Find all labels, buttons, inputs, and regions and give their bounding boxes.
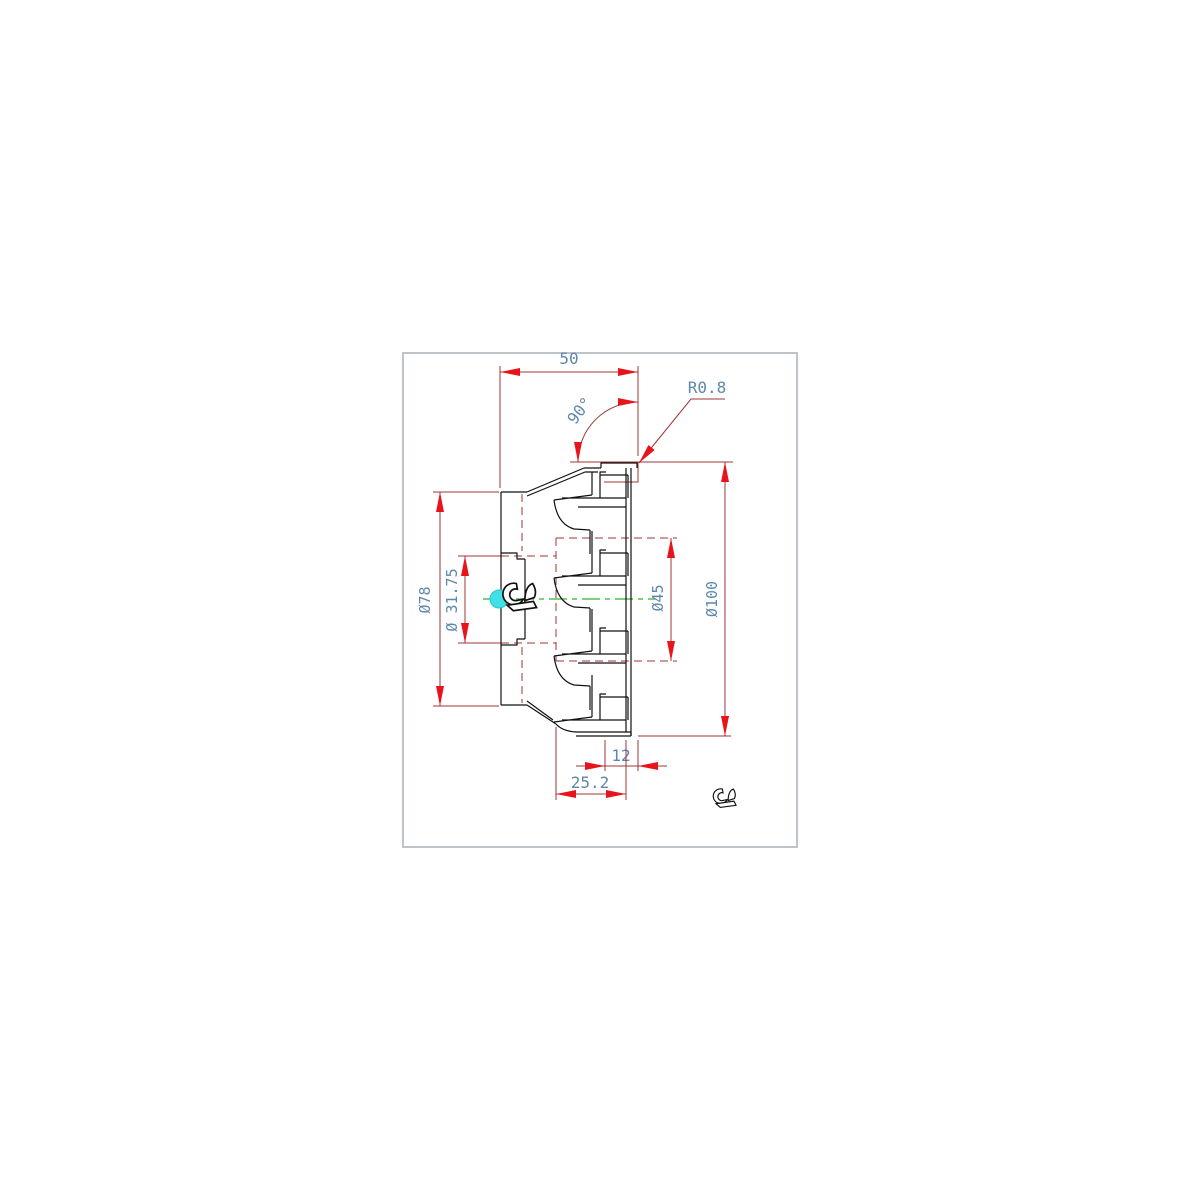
dim-label-counterbore-diameter: Ø45 (649, 584, 667, 611)
dim-label-back-diameter: Ø78 (416, 586, 434, 613)
dim-label-front-width: 25.2 (571, 773, 610, 792)
cad-drawing-canvas: 50 90° R0.8 Ø78 Ø 31.75 Ø45 (0, 0, 1200, 1200)
dim-label-cutting-diameter: Ø100 (703, 581, 721, 617)
dim-label-top-width: 50 (559, 349, 578, 368)
dim-label-bore-diameter: Ø 31.75 (443, 568, 461, 631)
dim-label-insert-offset: 12 (611, 746, 630, 765)
cad-drawing-svg: 50 90° R0.8 Ø78 Ø 31.75 Ø45 (0, 0, 1200, 1200)
dim-label-corner-radius: R0.8 (688, 378, 727, 397)
